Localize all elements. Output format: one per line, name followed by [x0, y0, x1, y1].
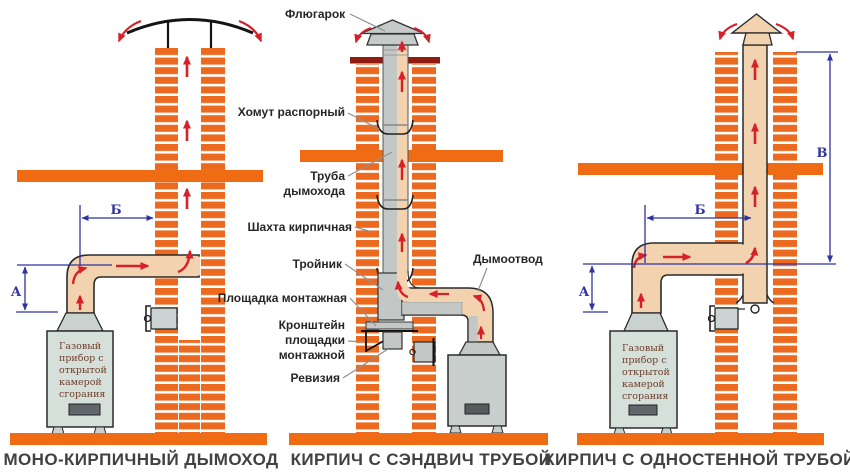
boiler-text-line: сгорания [59, 389, 105, 400]
chimney-cap-arc-icon [119, 20, 261, 49]
boiler-text-line: прибор с [622, 355, 667, 366]
diagram-canvas: Газовый прибор с открытой камерой сгоран… [0, 0, 850, 476]
revision-cap [383, 332, 402, 349]
label-truba: дымохода [284, 184, 346, 198]
floor-slab [289, 433, 548, 445]
boiler-text-line: Газовый [59, 341, 101, 352]
caption-left: МОНО-КИРПИЧНЫЙ ДЫМОХОД [3, 450, 278, 469]
label-kronshteyn: площадки [285, 333, 345, 347]
duct-outer-shell [402, 302, 462, 315]
middle-diagram: Флюгарок Хомут распорный Труба дымохода … [218, 7, 552, 469]
boiler-grille [629, 405, 657, 415]
label-khomut: Хомут распорный [238, 105, 345, 119]
boiler-text-line: Газовый [622, 343, 664, 354]
boiler-grille [69, 404, 100, 415]
boiler-text-line: прибор с [59, 353, 104, 364]
boiler-text-line: сгорания [622, 391, 668, 402]
dim-label-b: Б [694, 203, 705, 218]
cleanout-door [410, 338, 435, 366]
sandwich-pipe [383, 44, 408, 273]
duct-pipe-junction [742, 245, 745, 274]
label-kronshteyn: монтажной [279, 348, 345, 362]
dim-label-a: А [11, 285, 22, 300]
boiler-flue-collar [459, 342, 500, 355]
duct-outer-shell [469, 316, 478, 342]
gas-boiler [448, 355, 506, 433]
label-ploshchadka: Площадка монтажная [218, 291, 347, 305]
caption-middle: КИРПИЧ С СЭНДВИЧ ТРУБОЙ [291, 450, 552, 469]
brick-column [155, 48, 178, 433]
right-diagram: Газовый прибор с открытой камерой сгоран… [544, 14, 850, 469]
brick-column [773, 52, 797, 433]
label-kronshteyn: Кронштейн [279, 318, 345, 332]
duct-open-end [197, 257, 200, 276]
dim-label-b: Б [110, 203, 121, 218]
boiler-text-line: открытой [622, 367, 670, 378]
gas-boiler: Газовый прибор с открытой камерой сгоран… [47, 331, 113, 434]
boiler-leg [450, 426, 461, 433]
connecting-duct [67, 255, 199, 313]
brick-column [201, 48, 225, 433]
boiler-text-line: открытой [59, 365, 107, 376]
boiler-grille [465, 404, 489, 414]
cleanout-door [709, 306, 739, 331]
gas-boiler: Газовый прибор с открытой камерой сгоран… [610, 331, 677, 434]
floor-slab [577, 433, 824, 445]
boiler-leg [52, 427, 64, 434]
dim-label-v: В [817, 146, 828, 161]
boiler-leg [94, 427, 106, 434]
cleanout-door [145, 306, 178, 331]
brick-column [412, 64, 436, 433]
label-truba: Труба [310, 169, 345, 183]
chimney-schemes-diagram: Газовый прибор с открытой камерой сгоран… [0, 0, 850, 476]
label-troynik: Тройник [292, 257, 343, 271]
floor-slab [10, 433, 267, 445]
brick-base [179, 340, 200, 433]
caption-right: КИРПИЧ С ОДНОСТЕННОЙ ТРУБОЙ [544, 450, 850, 469]
left-diagram: Газовый прибор с открытой камерой сгоран… [3, 20, 278, 470]
boiler-flue-collar [57, 313, 103, 331]
label-reviziya: Ревизия [291, 371, 340, 385]
label-shakhta: Шахта кирпичная [247, 220, 352, 234]
dim-label-a: А [579, 285, 590, 300]
flue-cap-icon [720, 14, 793, 45]
ceiling-slab [17, 170, 263, 182]
label-dymootvod: Дымоотвод [473, 252, 543, 266]
ceiling-slab [578, 163, 823, 175]
boiler-text-line: камерой [622, 379, 665, 390]
boiler-text-line: камерой [59, 377, 102, 388]
label-flyugarok: Флюгарок [285, 7, 346, 21]
boiler-leg [492, 426, 503, 433]
boiler-flue-collar [624, 313, 668, 331]
flue-cap-icon [356, 20, 429, 45]
